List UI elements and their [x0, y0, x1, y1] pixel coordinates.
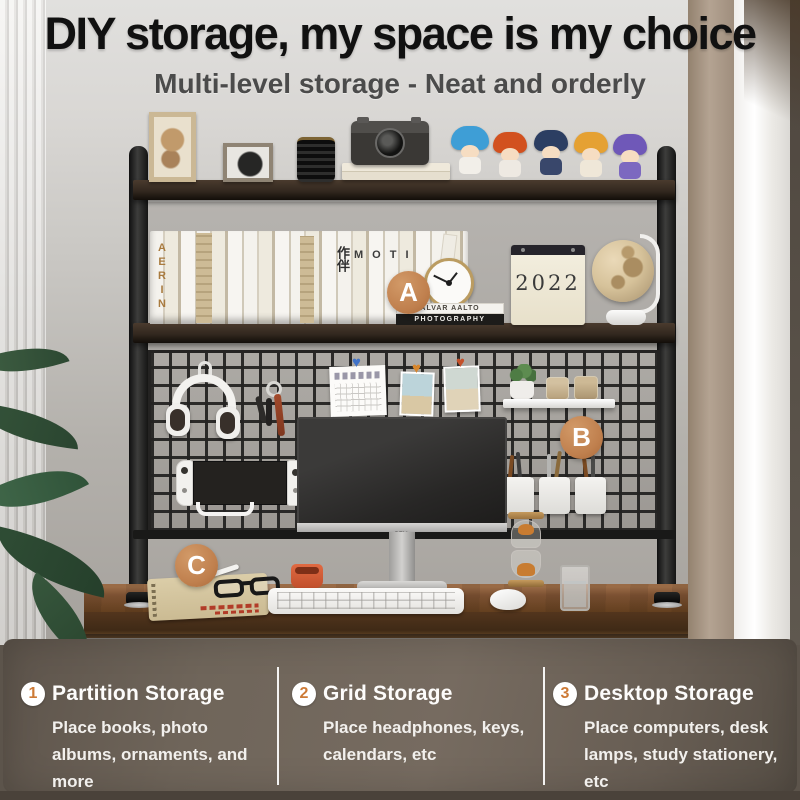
feature-partition-storage: 1 Partition Storage Place books, photo a…	[11, 681, 267, 795]
book-spine-chinese-title: 作伴	[332, 246, 351, 310]
globe-base	[606, 310, 646, 325]
book-stack-bottom-title: PHOTOGRAPHY	[396, 314, 504, 325]
toy-figurine-yellow	[573, 132, 609, 177]
grid-white-shelf	[503, 399, 615, 408]
water-glass	[560, 565, 590, 611]
camera-lens	[297, 137, 335, 182]
feature-description: Place books, photo albums, ornaments, an…	[52, 714, 267, 795]
headphones-left-cup	[166, 404, 190, 436]
calendar-year: 2022	[511, 271, 585, 295]
rack-right-foot-base	[652, 602, 682, 608]
monitor-bezel: DELL	[297, 523, 507, 532]
pen-cup	[539, 477, 570, 514]
feature-description: Place computers, desk lamps, study stati…	[584, 714, 791, 795]
camera-lens-front	[375, 128, 405, 158]
feature-title: Grid Storage	[323, 681, 527, 707]
monitor-screen	[297, 417, 507, 525]
callout-badge-a: A	[387, 271, 430, 314]
pen-cup	[503, 477, 534, 514]
feature-grid-storage: 2 Grid Storage Place headphones, keys, c…	[282, 681, 527, 768]
clock-center-dot	[446, 280, 452, 286]
feature-number-badge: 3	[553, 682, 577, 706]
feature-number-badge: 1	[21, 682, 45, 706]
feature-description: Place headphones, keys, calendars, etc	[323, 714, 527, 768]
succulent-plant	[508, 364, 536, 382]
notebook-red-subtitle	[215, 609, 259, 614]
orange-cup	[291, 564, 323, 588]
water	[564, 581, 586, 607]
pinned-photo-card	[443, 365, 481, 412]
column-divider	[277, 667, 279, 785]
eyeglasses-left-lens	[213, 578, 244, 598]
toy-figurine-purple	[612, 134, 648, 179]
hourglass	[508, 512, 544, 588]
heart-clip-orange: ♥	[412, 361, 421, 376]
succulent-pot	[510, 381, 534, 399]
feature-desktop-storage: 3 Desktop Storage Place computers, desk …	[543, 681, 791, 795]
top-shelf-board	[133, 180, 675, 200]
globe	[590, 234, 664, 326]
feature-title: Partition Storage	[52, 681, 267, 707]
notebook-spiral	[151, 583, 157, 617]
small-photo-frame	[223, 143, 273, 182]
room-photo: DIY storage, my space is my choice Multi…	[0, 0, 800, 645]
desk-clock	[424, 258, 474, 308]
console-wire-holder	[196, 502, 254, 516]
book-spine-title: AERIN	[156, 242, 168, 324]
console-screen	[193, 461, 287, 505]
toy-figurine-orange	[492, 132, 528, 177]
feature-number-badge: 2	[292, 682, 316, 706]
hourglass-top-cap	[508, 512, 544, 519]
subheadline: Multi-level storage - Neat and orderly	[0, 68, 800, 100]
pen-cup	[575, 477, 606, 514]
monitor-stand-neck	[389, 532, 415, 585]
patterned-book-spine	[300, 236, 314, 323]
toy-figurine-navy	[533, 130, 569, 175]
stacked-books	[342, 163, 450, 180]
calendar-clip-bar	[511, 245, 585, 255]
book-spine-letters: MOTI	[354, 249, 434, 261]
pinned-photo-card	[399, 371, 435, 416]
patterned-book-spine	[196, 233, 212, 323]
mouse	[490, 589, 526, 610]
product-hero-image: DIY storage, my space is my choice Multi…	[0, 0, 800, 800]
globe-arc-stand	[640, 234, 660, 314]
desk-calendar: 2022	[511, 245, 585, 325]
headphones-right-cup	[216, 407, 240, 439]
callout-badge-c: C	[175, 544, 218, 587]
toy-figurine-blue	[452, 126, 488, 174]
heart-clip-blue: ♥	[352, 355, 361, 370]
hourglass-top-bulb	[511, 520, 541, 548]
middle-shelf-board	[133, 323, 675, 343]
game-console	[176, 460, 304, 506]
hourglass-bottom-bulb	[511, 550, 541, 578]
key	[266, 398, 272, 426]
tall-picture-frame	[149, 112, 196, 182]
glass-jar	[546, 377, 569, 400]
glass-jar	[574, 376, 598, 400]
pinned-calendar-sheet	[329, 365, 387, 417]
eyeglasses-bridge	[241, 581, 251, 586]
keyboard	[268, 588, 464, 614]
camera-shutter-button	[411, 117, 421, 123]
frame-photo	[227, 147, 269, 178]
feature-title: Desktop Storage	[584, 681, 791, 707]
frame-artwork	[154, 117, 191, 177]
headline: DIY storage, my space is my choice	[0, 8, 800, 60]
keyboard-keys	[277, 592, 455, 609]
hourglass-bottom-cap	[508, 580, 544, 587]
camera	[351, 121, 429, 165]
joycon-left	[176, 460, 193, 506]
heart-clip-red: ♥	[456, 355, 465, 370]
camera-dial	[357, 117, 369, 123]
callout-badge-b: B	[560, 416, 603, 459]
